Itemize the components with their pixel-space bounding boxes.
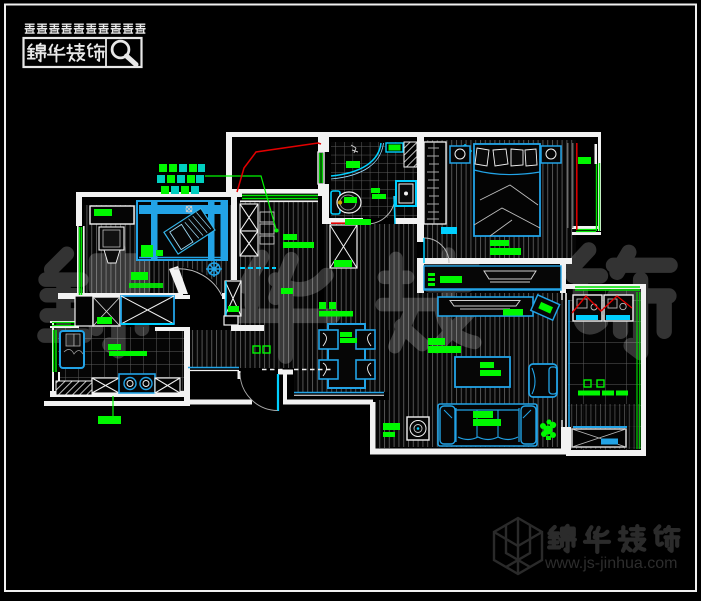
svg-text:www.js-jinhua.com: www.js-jinhua.com [544,555,677,572]
